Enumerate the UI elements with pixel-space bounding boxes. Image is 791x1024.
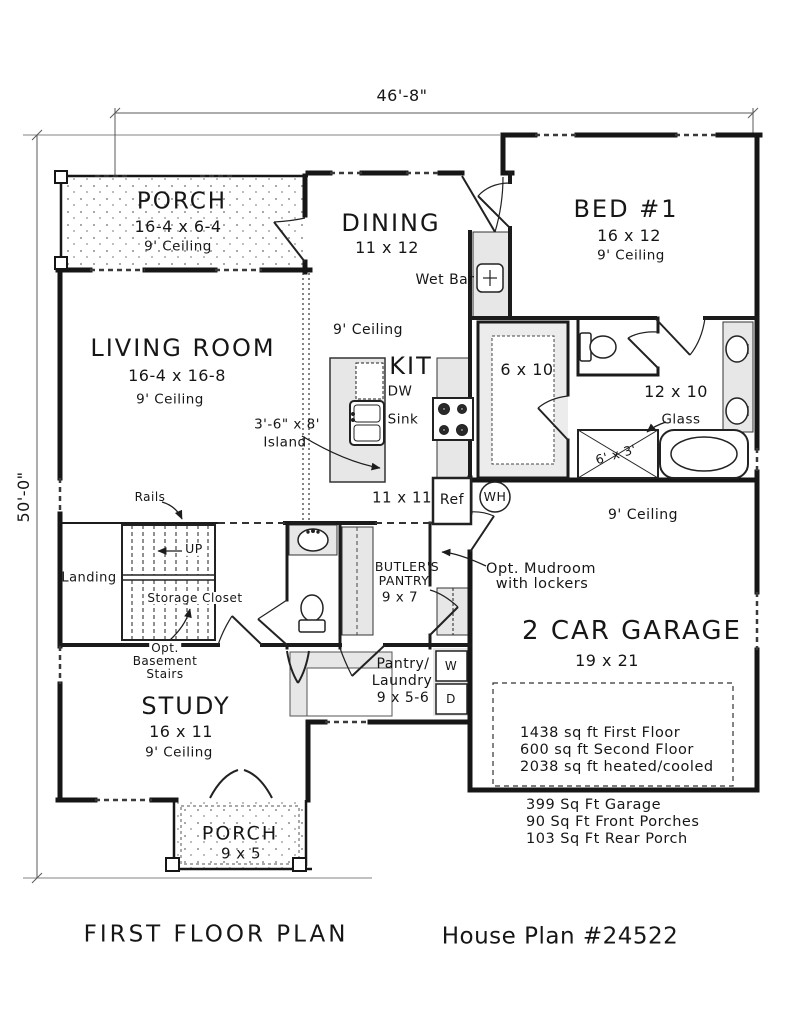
area-front-porches: 90 Sq Ft Front Porches — [526, 815, 699, 830]
closet-size: 6 x 10 — [500, 362, 553, 378]
mudroom-arrow — [442, 552, 486, 566]
rear-porch-name: PORCH — [202, 825, 278, 844]
kitchen-name: KIT — [389, 354, 432, 378]
cased-opening-dotted — [303, 273, 309, 520]
front-porch-ceiling: 9' Ceiling — [144, 240, 212, 254]
floor-plan-sheet: 46'-8" 50'-0" PORCH 16-4 x 6-4 9' Ceilin… — [0, 0, 791, 1024]
dishwasher-icon — [356, 363, 383, 399]
washer-label: W — [445, 660, 457, 672]
butlers-pantry-size: 9 x 7 — [382, 591, 418, 605]
bed1-ceiling: 9' Ceiling — [597, 249, 665, 263]
rails-arrow — [162, 502, 182, 519]
area-garage: 399 Sq Ft Garage — [526, 798, 661, 813]
tub-icon — [660, 430, 748, 478]
front-porch-name: PORCH — [137, 191, 227, 214]
kitchen-ceiling: 9' Ceiling — [333, 323, 403, 337]
dining-name: DINING — [341, 211, 440, 235]
butlers-pantry-line2: PANTRY — [379, 575, 430, 588]
garage-name: 2 CAR GARAGE — [522, 618, 742, 644]
dining-size: 11 x 12 — [355, 240, 419, 256]
up-label: UP — [183, 543, 205, 556]
powder-sink-icon — [298, 529, 328, 551]
rails-label: Rails — [135, 491, 166, 503]
area-first-floor: 1438 sq ft First Floor — [520, 726, 680, 741]
bath-toilet-icon — [580, 333, 616, 361]
area-rear-porch: 103 Sq Ft Rear Porch — [526, 832, 688, 847]
study-name: STUDY — [141, 694, 230, 718]
pantry-laundry-line1: Pantry/ — [376, 657, 429, 671]
opt-basement-line1: Opt. — [149, 642, 181, 654]
opt-basement-line3: Stairs — [144, 668, 185, 680]
living-room-name: LIVING ROOM — [90, 336, 275, 360]
dishwasher-label: DW — [388, 385, 413, 399]
landing-label: Landing — [61, 572, 116, 585]
living-room-size: 16-4 x 16-8 — [128, 368, 226, 384]
wet-bar-sink-icon — [477, 264, 503, 292]
island-label: Island — [263, 436, 306, 450]
study-ceiling: 9' Ceiling — [145, 746, 213, 760]
mudroom-line1: Opt. Mudroom — [486, 562, 596, 577]
kitchen-sink-icon — [350, 401, 384, 445]
wet-bar-label: Wet Bar — [415, 273, 474, 287]
storage-closet-label: Storage Closet — [145, 592, 244, 604]
dryer-label: D — [446, 693, 456, 705]
plan-number: House Plan #24522 — [442, 926, 679, 949]
mudroom-line2: with lockers — [496, 577, 589, 592]
pantry-laundry-line2: Laundry — [372, 674, 433, 688]
front-porch-size: 16-4 x 6-4 — [134, 219, 221, 235]
study-size: 16 x 11 — [149, 724, 213, 740]
powder-toilet-icon — [299, 595, 325, 632]
island-size-label: 3'-6" x 8' — [254, 418, 320, 432]
butlers-pantry-line1: BUTLER'S — [375, 561, 439, 574]
refrigerator-label: Ref — [440, 493, 464, 507]
bath-size: 12 x 10 — [644, 384, 708, 400]
sink-label: Sink — [388, 413, 419, 427]
opt-basement-line2: Basement — [131, 655, 200, 667]
glass-label: Glass — [661, 413, 700, 427]
garage-ceiling: 9' Ceiling — [608, 508, 678, 522]
bed1-size: 16 x 12 — [597, 228, 661, 244]
area-second-floor: 600 sq ft Second Floor — [520, 743, 694, 758]
overall-width-dimension: 46'-8" — [376, 88, 427, 104]
kitchen-size: 11 x 11 — [372, 491, 432, 506]
garage-size: 19 x 21 — [575, 653, 639, 669]
pantry-laundry-size: 9 x 5-6 — [377, 691, 429, 705]
porch-edges — [55, 171, 312, 871]
bed1-name: BED #1 — [573, 197, 678, 221]
overall-height-dimension: 50'-0" — [16, 471, 32, 522]
study-french-door-south — [210, 770, 272, 798]
rear-porch-size: 9 x 5 — [221, 847, 261, 862]
living-room-ceiling: 9' Ceiling — [136, 393, 204, 407]
water-heater-label: WH — [484, 491, 507, 504]
area-heated-cooled: 2038 sq ft heated/cooled — [520, 760, 714, 775]
range-icon — [433, 398, 473, 440]
sheet-title: FIRST FLOOR PLAN — [84, 924, 349, 947]
